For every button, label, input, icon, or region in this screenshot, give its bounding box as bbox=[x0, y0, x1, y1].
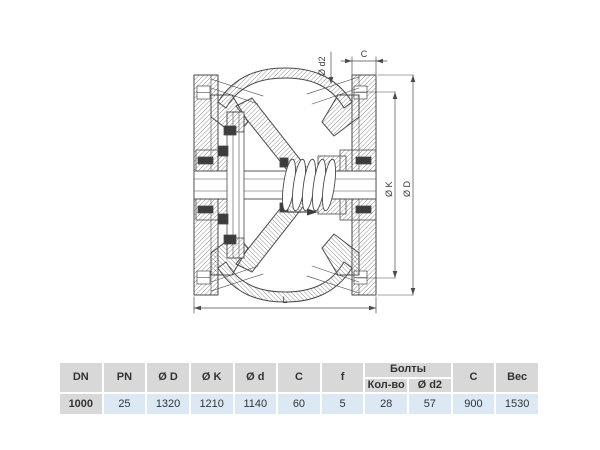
header-pn: PN bbox=[104, 363, 146, 392]
cell-dn: 1000 bbox=[60, 394, 102, 414]
dim-label-k: Ø K bbox=[384, 181, 394, 197]
header-diameter-d: Ø D bbox=[147, 363, 189, 392]
header-f: f bbox=[322, 363, 364, 392]
cell-diameter-d-small: 1140 bbox=[235, 394, 277, 414]
spec-table: DN PN Ø D Ø K Ø d C f Болты C Вес Кол-во… bbox=[58, 361, 540, 416]
header-bolts-group: Болты bbox=[365, 363, 450, 377]
header-bolts-count: Кол-во bbox=[365, 379, 407, 393]
cell-c: 60 bbox=[278, 394, 320, 414]
cell-f: 5 bbox=[322, 394, 364, 414]
dim-label-d: Ø D bbox=[402, 180, 412, 197]
cell-weight: 1530 bbox=[496, 394, 538, 414]
header-diameter-k: Ø K bbox=[191, 363, 233, 392]
dim-label-c: C bbox=[361, 49, 368, 59]
cell-pn: 25 bbox=[104, 394, 146, 414]
dim-label-d2: Ø d2 bbox=[317, 56, 327, 76]
header-diameter-d-small: Ø d bbox=[235, 363, 277, 392]
dimension-c bbox=[341, 57, 387, 74]
cell-bolts-d2: 57 bbox=[409, 394, 451, 414]
cell-diameter-d: 1320 bbox=[147, 394, 189, 414]
header-weight: Вес bbox=[496, 363, 538, 392]
cell-c2: 900 bbox=[453, 394, 495, 414]
table-row: 1000 25 1320 1210 1140 60 5 28 57 900 15… bbox=[60, 394, 538, 414]
catalog-page: C Ø d2 Ø K Ø D L DN PN Ø D Ø K Ø d C f Б… bbox=[0, 0, 600, 450]
header-bolts-d2: Ø d2 bbox=[409, 379, 451, 393]
header-dn: DN bbox=[60, 363, 102, 392]
cell-bolts-count: 28 bbox=[365, 394, 407, 414]
cell-diameter-k: 1210 bbox=[191, 394, 233, 414]
dim-label-l: L bbox=[282, 295, 287, 305]
header-c2: C bbox=[453, 363, 495, 392]
spring bbox=[280, 158, 338, 212]
header-c: C bbox=[278, 363, 320, 392]
